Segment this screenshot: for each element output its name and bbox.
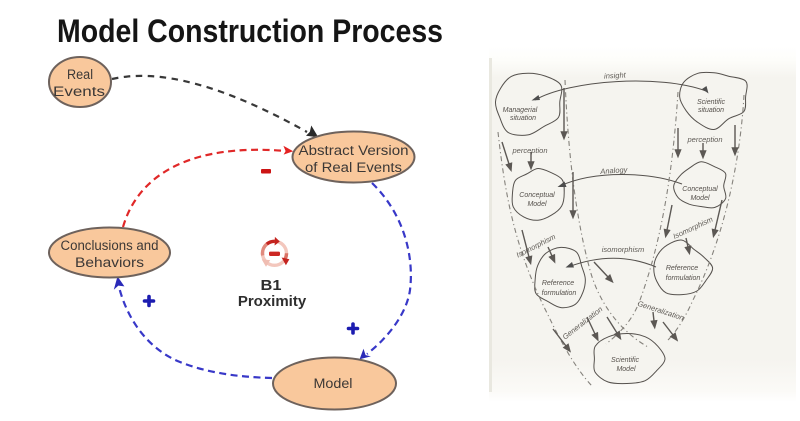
svg-text:Behaviors: Behaviors: [75, 255, 144, 270]
svg-text:of Real Events: of Real Events: [305, 160, 402, 175]
svg-text:Model Construction Process: Model Construction Process: [57, 13, 443, 49]
svg-text:Conclusions and: Conclusions and: [61, 238, 159, 253]
svg-text:formulation: formulation: [542, 290, 577, 297]
svg-text:formulation: formulation: [666, 275, 701, 282]
svg-text:Model: Model: [616, 366, 636, 373]
svg-text:isomorphism: isomorphism: [602, 245, 645, 254]
svg-text:Reference: Reference: [542, 280, 574, 287]
svg-text:Model: Model: [314, 376, 353, 391]
svg-text:B1: B1: [261, 277, 282, 294]
svg-text:Proximity: Proximity: [238, 293, 307, 310]
svg-text:Real: Real: [67, 67, 93, 82]
svg-text:perception: perception: [511, 146, 547, 155]
svg-text:insight: insight: [604, 70, 627, 80]
svg-text:Conceptual: Conceptual: [519, 192, 555, 199]
svg-text:perception: perception: [686, 135, 722, 144]
svg-text:Abstract Version: Abstract Version: [299, 143, 409, 158]
svg-text:Scientific: Scientific: [611, 357, 640, 364]
svg-text:Model: Model: [690, 195, 710, 202]
svg-text:situation: situation: [510, 115, 536, 122]
svg-text:Conceptual: Conceptual: [682, 186, 718, 193]
svg-text:Scientific: Scientific: [697, 99, 726, 106]
svg-text:Managerial: Managerial: [503, 107, 538, 114]
svg-text:Events: Events: [53, 84, 105, 99]
svg-text:Model: Model: [527, 201, 547, 208]
svg-text:situation: situation: [698, 107, 724, 114]
svg-text:Reference: Reference: [666, 265, 698, 272]
